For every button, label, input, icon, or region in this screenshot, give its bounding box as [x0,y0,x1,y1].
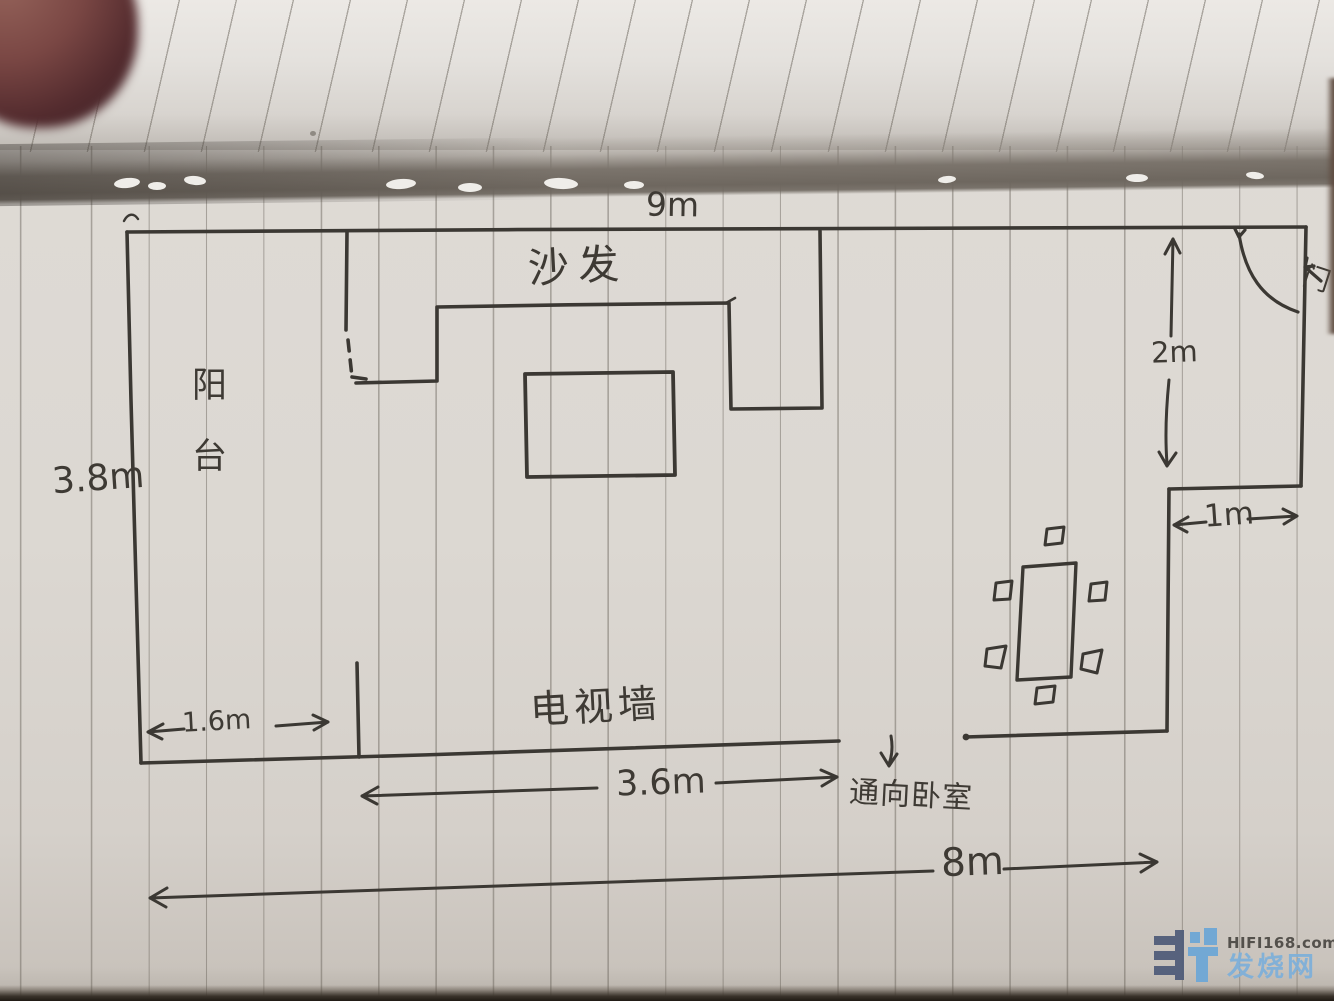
pen-blob [963,734,970,741]
wall-bottom-left [141,741,839,763]
tv-wall-tick [357,663,359,757]
coffee-table [525,372,675,477]
logo-glyph-light [1188,928,1218,982]
dim-1.6m-right [276,715,328,730]
to-bedroom-arrow [881,736,897,766]
dim-3.6m-left [362,787,597,804]
chair [1045,527,1064,545]
dim-1.6m-left [148,724,184,739]
dim-8m-left [150,871,933,907]
sofa-partition-dashed [348,340,352,377]
dim-tv-wall-label: 3.6m [615,764,706,802]
table-edge-shadow [0,985,1334,1001]
to-bedroom-label: 通向卧室 [848,778,973,814]
hifi168-logo [1154,924,1220,984]
sofa-partition-hook [352,377,366,379]
dim-2m-lower [1159,380,1176,466]
watermark-site: HIFI168.com [1227,935,1334,952]
dim-bottom-label: 8m [940,842,1004,883]
dim-left-label: 3.8m [51,458,146,500]
page-right-edge-shadow [1326,78,1334,334]
door-arc [1239,234,1298,312]
dim-entry-width-label: 1m [1203,498,1255,532]
chair [1035,686,1055,704]
dimension-arrows [148,239,1297,907]
chair [994,581,1012,600]
corner-squiggle [124,215,138,221]
chair [1089,582,1107,601]
dim-8m-right [1004,854,1157,872]
wall-entry-notch [1169,486,1301,489]
wall-left [127,232,141,763]
wall-bottom-right [965,731,1167,737]
chair [985,646,1006,668]
dim-1m-left [1174,517,1206,532]
watermark-site-name: 发烧网 [1227,954,1334,981]
sofa-partition-solid [346,232,347,330]
dining-table [1017,563,1076,680]
sofa-label: 沙发 [527,243,629,289]
chair [1081,650,1102,673]
dim-entry-depth-label: 2m [1151,337,1199,368]
logo-glyph-dark [1154,930,1184,980]
dim-3.6m-right [716,770,837,786]
photo-notebook-sketch: 9m 沙发 阳台 3.8m 2m 门 1m 1.6m 电视墙 3.6m 通向卧室… [0,0,1334,1001]
dining-set [985,527,1107,704]
wall-top [127,227,1306,232]
wall-right-inner [1167,489,1169,731]
dim-1m-right [1248,509,1297,524]
watermark: HIFI168.com 发烧网 [1154,924,1334,984]
watermark-text: HIFI168.com 发烧网 [1227,935,1334,981]
dim-top-label: 9m [646,188,700,222]
room-walls [124,215,1306,763]
tv-wall-label: 电视墙 [529,685,663,731]
dim-balcony-strip-label: 1.6m [181,706,252,737]
dim-2m-upper [1165,239,1180,336]
balcony-label: 阳台 [188,366,223,508]
